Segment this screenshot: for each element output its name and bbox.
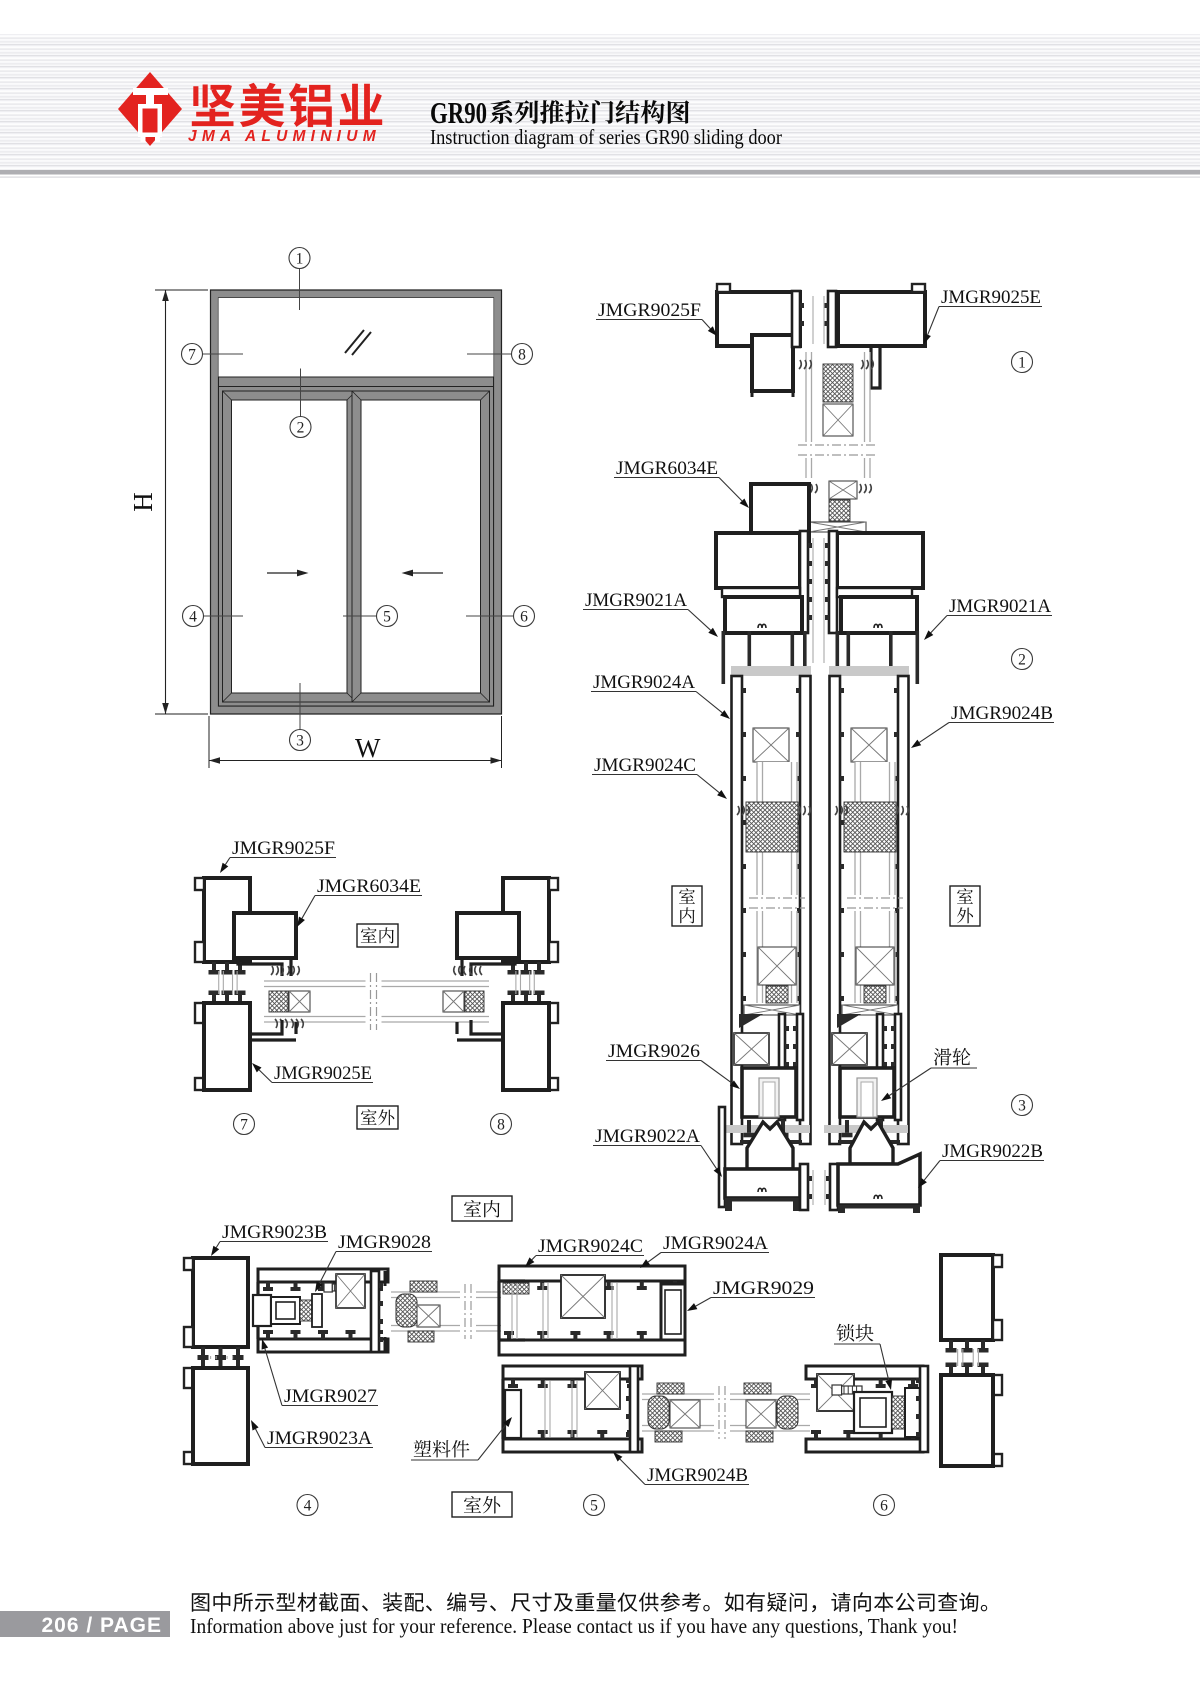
svg-text:JMGR9024A: JMGR9024A	[593, 672, 695, 693]
svg-text:8: 8	[497, 1116, 505, 1133]
svg-text:5: 5	[590, 1497, 598, 1514]
svg-text:JMGR9021A: JMGR9021A	[949, 596, 1051, 617]
svg-text:JMGR9022A: JMGR9022A	[595, 1126, 700, 1147]
svg-text:3: 3	[1018, 1097, 1026, 1114]
svg-text:W: W	[355, 733, 381, 763]
svg-text:JMGR9024C: JMGR9024C	[594, 755, 696, 776]
svg-text:8: 8	[518, 346, 526, 363]
svg-text:4: 4	[304, 1497, 312, 1514]
svg-text:4: 4	[189, 608, 197, 625]
svg-text:JMGR9026: JMGR9026	[608, 1041, 700, 1062]
svg-text:JMGR9029: JMGR9029	[713, 1278, 814, 1299]
svg-text:JMGR9024B: JMGR9024B	[951, 703, 1053, 724]
svg-text:H: H	[128, 492, 158, 512]
svg-text:JMGR9024A: JMGR9024A	[663, 1233, 768, 1254]
svg-text:JMGR9024C: JMGR9024C	[538, 1236, 643, 1257]
svg-text:3: 3	[296, 732, 304, 749]
svg-text:JMA ALUMINIUM: JMA ALUMINIUM	[188, 128, 379, 145]
svg-text:JMGR9021A: JMGR9021A	[585, 590, 687, 611]
svg-text:JMGR9025E: JMGR9025E	[274, 1063, 372, 1084]
svg-text:1: 1	[296, 250, 304, 267]
svg-text:JMGR6034E: JMGR6034E	[616, 458, 718, 479]
svg-text:6: 6	[880, 1497, 888, 1514]
svg-text:7: 7	[240, 1116, 248, 1133]
svg-text:Information above just for you: Information above just for your referenc…	[190, 1614, 958, 1638]
svg-text:Instruction diagram of series: Instruction diagram of series GR90 slidi…	[430, 125, 782, 149]
svg-text:5: 5	[383, 608, 391, 625]
svg-text:JMGR6034E: JMGR6034E	[317, 876, 421, 897]
svg-text:JMGR9023B: JMGR9023B	[222, 1222, 327, 1243]
svg-text:JMGR9024B: JMGR9024B	[647, 1465, 748, 1486]
svg-text:JMGR9028: JMGR9028	[338, 1232, 431, 1253]
svg-text:2: 2	[297, 419, 305, 436]
svg-text:JMGR9027: JMGR9027	[284, 1386, 377, 1407]
svg-text:6: 6	[520, 608, 528, 625]
svg-text:7: 7	[188, 346, 196, 363]
svg-text:206 / PAGE: 206 / PAGE	[42, 1614, 163, 1637]
svg-text:JMGR9025F: JMGR9025F	[232, 838, 335, 859]
svg-text:1: 1	[1018, 354, 1026, 371]
svg-text:2: 2	[1018, 651, 1026, 668]
svg-text:JMGR9023A: JMGR9023A	[267, 1428, 372, 1449]
svg-text:JMGR9022B: JMGR9022B	[942, 1141, 1043, 1162]
svg-text:JMGR9025E: JMGR9025E	[941, 287, 1041, 308]
svg-text:JMGR9025F: JMGR9025F	[598, 300, 701, 321]
